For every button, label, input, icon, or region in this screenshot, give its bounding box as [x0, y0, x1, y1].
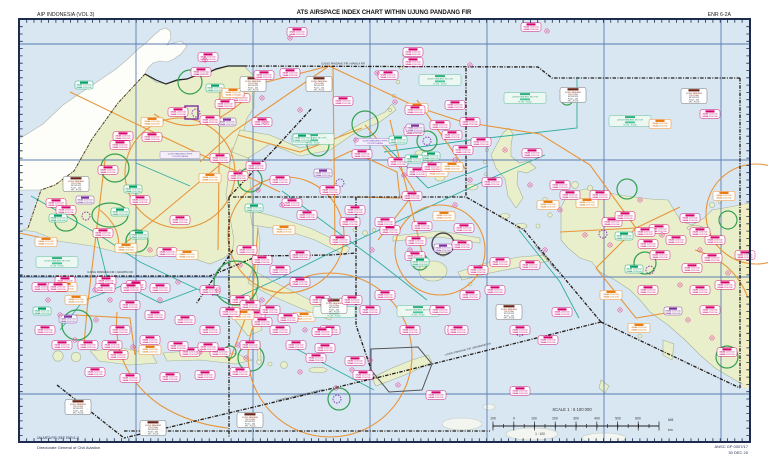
svg-text:JAKARTA FIR (SEE ENR 6-1): JAKARTA FIR (SEE ENR 6-1)	[37, 436, 79, 440]
svg-text:600: 600	[635, 417, 641, 421]
svg-text:100: 100	[490, 417, 496, 421]
svg-text:km: km	[668, 428, 673, 432]
svg-text:400: 400	[594, 417, 600, 421]
svg-text:30 DEC 20: 30 DEC 20	[728, 450, 748, 455]
svg-text:NM: NM	[668, 418, 673, 422]
svg-text:500: 500	[615, 417, 621, 421]
svg-text:Directorate General of Civil A: Directorate General of Civil Aviation	[37, 445, 100, 450]
svg-text:100: 100	[531, 417, 537, 421]
svg-text:UJUNG PANDANG FIR / JAKARTA FI: UJUNG PANDANG FIR / JAKARTA FIR	[87, 270, 133, 274]
svg-text:200: 200	[552, 417, 558, 421]
svg-text:300: 300	[573, 417, 579, 421]
svg-text:0: 0	[513, 417, 515, 421]
svg-text:SCALE 1 : 6 100 000: SCALE 1 : 6 100 000	[552, 407, 592, 412]
svg-text:ATS AIRSPACE INDEX CHART WITHI: ATS AIRSPACE INDEX CHART WITHIN UJUNG PA…	[297, 10, 472, 16]
svg-text:UJUNG PANDANG FIR / MANILA F: UJUNG PANDANG FIR / MANILA FIR	[321, 62, 365, 66]
svg-text:1 : 100: 1 : 100	[535, 432, 545, 436]
svg-text:AIP INDONESIA (VOL 3): AIP INDONESIA (VOL 3)	[37, 12, 95, 18]
svg-text:ENR 6-2A: ENR 6-2A	[708, 12, 732, 18]
svg-text:ANSC GP 0007/17: ANSC GP 0007/17	[714, 444, 748, 449]
